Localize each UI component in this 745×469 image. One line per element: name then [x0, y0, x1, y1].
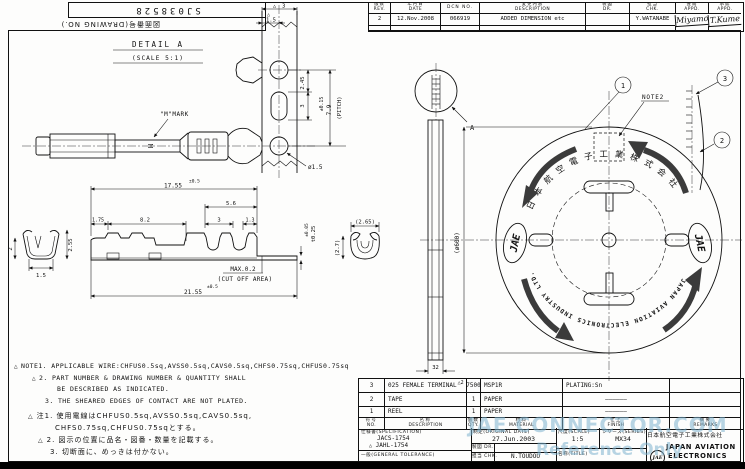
rev-signature-appd1: K.Miyamoto — [675, 13, 709, 27]
dim-cs-h: (2.7) — [335, 240, 341, 257]
dim-hole-offset: 1.5 — [266, 18, 276, 24]
rev-value-dcn: 066919 — [440, 14, 479, 26]
dr-label: 製図 DR. — [471, 444, 495, 452]
side-profile — [91, 233, 297, 260]
note-line: △NOTE1. APPLICABLE WIRE:CHFUS0.5sq,AVSS0… — [10, 361, 362, 373]
dr-value — [495, 444, 556, 452]
company-name-en1: JAPAN AVIATION — [646, 439, 742, 451]
dim-1-75: 1.75 — [92, 218, 104, 224]
dim-8-2: 8.2 — [140, 218, 150, 224]
side-view-drawing: 2 2.55 1.5 17.55 ±0.5 5.6 — [5, 178, 380, 320]
front-view: 2 2.55 1.5 — [8, 230, 74, 279]
rev-value-description: ADDED DIMENSION etc — [479, 14, 585, 26]
bottom-crop-bar — [0, 462, 745, 469]
detail-a-drawing: DETAIL A (SCALE 5:1) M — [10, 3, 355, 180]
rev-signature-appd2: T.Kume — [708, 13, 742, 27]
part-material: MSP1R — [480, 379, 562, 392]
rev-value-dr — [585, 14, 629, 26]
detail-a-title: DETAIL A — [132, 40, 184, 49]
balloons: 1 3 2 — [585, 70, 733, 152]
note-line-jp: △2. 図示の位置に品名・図番・数量を記載する。 — [10, 435, 362, 447]
note-line-jp: 3. 切断面に、めっきは付かない。 — [10, 447, 362, 459]
dim-thickness: t0.25 — [311, 226, 317, 243]
part-material: PAPER — [480, 392, 562, 406]
dim-thickness-tol: ±0.05 — [304, 223, 310, 237]
rev-header-chk: 担当CHK. — [629, 3, 675, 14]
note-line-jp: △注1. 使用電線はCHFUS0.5sq,AVSS0.5sq,CAVS0.5sq… — [10, 411, 362, 423]
dim-pitch: 7.9 — [326, 104, 333, 115]
part-finish: PLATING:Sn — [562, 379, 669, 392]
rev-header-rev: 版数REV. — [369, 3, 390, 14]
jae-logo-left: JAE — [509, 232, 524, 254]
part-remarks — [669, 392, 741, 406]
parts-table: 3 025 FEMALE TERMINAL△2 7500 MSP1R PLATI… — [358, 378, 744, 430]
spec-value-2: △ JAHL-1754 — [359, 442, 471, 449]
note-line: 3. THE SHEARED EDGES OF CONTACT ARE NOT … — [10, 396, 362, 408]
dim-slot-length: 3 — [300, 104, 306, 107]
series-cell: シリーズ(SERIES) MX34 — [600, 428, 646, 448]
dim-front-h2: 2.55 — [68, 238, 74, 251]
drawing-sheet: SJ038528 図面番号(DRAWING NO.) 版数REV. 年月日DAT… — [0, 0, 745, 469]
tape-tail — [686, 85, 704, 193]
rev-value-rev: 2 — [369, 14, 390, 26]
part-qty: 7500 — [466, 379, 480, 392]
dim-3: 3 — [217, 218, 220, 224]
part-finish: ―――――― — [562, 406, 669, 417]
series-value: MX34 — [600, 435, 646, 443]
dim-17-55: 17.55 — [164, 182, 182, 189]
side-view-dimensions: 17.55 ±0.5 5.6 1.75 8.2 3 1.3 21.55 ±0.5… — [91, 179, 317, 299]
reel-side-view: 32 — [416, 120, 455, 374]
dim-strip-width: 3 — [282, 4, 285, 10]
note-line: △2. PART NUMBER & DRAWING NUMBER & QUANT… — [10, 373, 362, 385]
part-remarks — [669, 406, 741, 417]
detail-a-ref-label: A — [470, 124, 475, 132]
rev-value-date: 12.Nov.2008 — [390, 14, 440, 26]
part-finish: ―――――― — [562, 392, 669, 406]
dim-pitch-label: (PITCH) — [337, 96, 343, 119]
original-date-label: 制定(ORIGINAL DATE) — [471, 428, 556, 435]
scale-value: 1:5 — [556, 435, 599, 443]
svg-text:JAPAN AVIATION ELECTRONICS IND: JAPAN AVIATION ELECTRONICS INDUSTRY LTD. — [528, 270, 687, 328]
rev-triangle-mark: △ — [273, 4, 276, 10]
balloon-2: 2 — [720, 137, 724, 145]
balloon-1: 1 — [621, 82, 625, 90]
m-mark-label: "M"MARK — [160, 111, 189, 118]
spec-label: 仕様書(SPECIFICATION) — [359, 428, 471, 435]
detail-a-callout: A — [415, 63, 475, 132]
dim-5-6: 5.6 — [226, 201, 236, 207]
dim-21-55-tol: ±0.5 — [207, 284, 218, 290]
dim-front-w: 1.5 — [36, 273, 46, 279]
reel-drawing: JAE JAE 日本航空電子工業株式会社 JAPAN AVIATION ELEC… — [380, 33, 745, 383]
company-name-jp: 日本航空電子工業株式会社 — [646, 428, 742, 439]
spec-value-1: JACS-1754 — [359, 435, 471, 442]
rev-header-dr: 製図DR. — [585, 3, 629, 14]
reel-company-en: JAPAN AVIATION ELECTRONICS INDUSTRY LTD. — [528, 270, 687, 328]
part-no: 3 — [359, 379, 384, 392]
notes-block: △NOTE1. APPLICABLE WIRE:CHFUS0.5sq,AVSS0… — [10, 361, 362, 458]
reel-arc-text: 日本航空電子工業株式会社 JAPAN AVIATION ELECTRONICS … — [525, 149, 686, 329]
balloon-3: 3 — [723, 75, 727, 83]
detail-a-title-group: DETAIL A (SCALE 5:1) — [113, 40, 203, 63]
original-date-value: 27.Jun.2003 — [471, 435, 556, 443]
dim-front-h1: 2 — [8, 247, 14, 250]
note-line-jp: CHFS0.75sq,CHFUS0.75sqとする。 — [10, 423, 362, 435]
dim-cutoff-max: MAX.0.2 — [230, 266, 256, 273]
note-line: BE DESCRIBED AS INDICATED. — [10, 384, 362, 396]
rev-header-description: 変更内容DESCRIPTION — [479, 3, 585, 14]
detail-a-scale: (SCALE 5:1) — [132, 55, 184, 62]
revision-table: 版数REV. 年月日DATE DCN NO. 変更内容DESCRIPTION 製… — [368, 2, 744, 32]
dim-cutoff-area: (CUT OFF AREA) — [218, 276, 273, 283]
part-no: 2 — [359, 392, 384, 406]
title-label: 名称(TITLE) — [556, 449, 646, 457]
part-remarks — [669, 379, 741, 392]
part-no: 1 — [359, 406, 384, 417]
part-material: PAPER — [480, 406, 562, 417]
rev-header-date: 年月日DATE — [390, 3, 440, 14]
part-description: 025 FEMALE TERMINAL△2 — [384, 379, 466, 392]
rev-header-dcn: DCN NO. — [440, 3, 479, 14]
dim-reel-dia: (ø600) — [454, 232, 461, 254]
wire-barrel-section: (2.65) (2.7) — [335, 220, 379, 259]
general-tolerance-label: 一般(GENERAL TOLERANCE) — [359, 450, 471, 458]
dim-pitch-tol: ±0.15 — [319, 97, 325, 112]
dim-17-55-tol: ±0.5 — [189, 179, 200, 185]
part-qty: 1 — [466, 406, 480, 417]
scale-cell: 尺度(SCALE) 1:5 — [556, 428, 600, 448]
dim-cs-w: (2.65) — [355, 220, 375, 226]
rev-value-chk: Y.WATANABE — [629, 14, 675, 26]
winding-arrows — [522, 141, 702, 341]
dim-1-3: 1.3 — [245, 218, 254, 224]
note2-label: NOTE2 — [642, 94, 664, 101]
dim-21-55: 21.55 — [184, 289, 202, 296]
part-description: TAPE — [384, 392, 466, 406]
title-block-info: 仕様書(SPECIFICATION) JACS-1754 △ JAHL-1754… — [358, 428, 744, 464]
dim-hole-to-slot: 2.45 — [300, 76, 306, 89]
dim-reel-width: 32 — [432, 365, 439, 371]
reel-logos: JAE JAE — [500, 221, 715, 265]
dim-hole-dia: ø1.5 — [308, 164, 323, 171]
part-qty: 1 — [466, 392, 480, 406]
jae-logo-right: JAE — [692, 232, 707, 254]
part-description: REEL — [384, 406, 466, 417]
